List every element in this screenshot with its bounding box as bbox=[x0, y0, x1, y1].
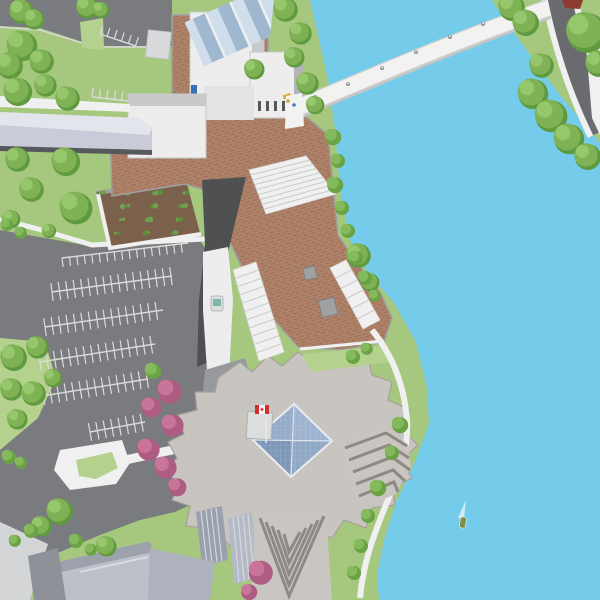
garden-plant bbox=[178, 217, 183, 222]
garden-plant bbox=[147, 231, 150, 234]
boat-hull bbox=[459, 517, 466, 529]
pink-flowering-tree bbox=[142, 398, 162, 418]
garden-plant bbox=[158, 189, 164, 195]
person-dot bbox=[286, 99, 290, 103]
bridge-approach bbox=[285, 93, 304, 129]
station-low-block bbox=[204, 86, 254, 120]
pink-flowering-tree bbox=[249, 561, 273, 585]
garden-plant bbox=[114, 232, 117, 235]
tram-roof bbox=[213, 299, 221, 306]
lamppost bbox=[346, 82, 350, 86]
lamppost bbox=[414, 50, 418, 54]
garden-plant bbox=[122, 217, 126, 221]
skylight-block bbox=[246, 411, 273, 440]
garden-plant bbox=[97, 192, 100, 195]
annex-roof-band bbox=[128, 94, 206, 106]
plaza-kiosk bbox=[303, 266, 318, 281]
lamppost bbox=[481, 22, 485, 26]
blue-rooftop-box bbox=[191, 85, 197, 94]
garden-plant bbox=[148, 217, 154, 223]
lamppost bbox=[380, 66, 384, 70]
garden-plant bbox=[183, 203, 188, 208]
small-building bbox=[146, 30, 172, 59]
pink-flowering-tree bbox=[158, 380, 182, 404]
elevated-walkway bbox=[0, 94, 206, 158]
pink-flowering-tree bbox=[241, 584, 257, 600]
garden-plant bbox=[117, 231, 121, 235]
red-roof-building bbox=[562, 0, 583, 9]
garden-plant bbox=[102, 190, 106, 194]
person-dot bbox=[292, 103, 296, 107]
pink-flowering-tree bbox=[138, 439, 160, 461]
garden-plant bbox=[119, 218, 122, 221]
pink-flowering-tree bbox=[155, 457, 177, 479]
map-viewport[interactable] bbox=[0, 0, 600, 600]
garden-plant bbox=[127, 204, 131, 208]
plaza-kiosk bbox=[318, 297, 338, 317]
garden-plant bbox=[185, 190, 189, 194]
pink-flowering-tree bbox=[162, 415, 184, 437]
garden-plant bbox=[124, 205, 127, 208]
pink-flowering-tree bbox=[168, 478, 186, 496]
garden-plant bbox=[153, 203, 159, 209]
lamppost bbox=[448, 35, 452, 39]
tram[interactable] bbox=[211, 296, 223, 311]
map-canvas[interactable] bbox=[0, 0, 600, 600]
garden-plant bbox=[173, 230, 178, 235]
